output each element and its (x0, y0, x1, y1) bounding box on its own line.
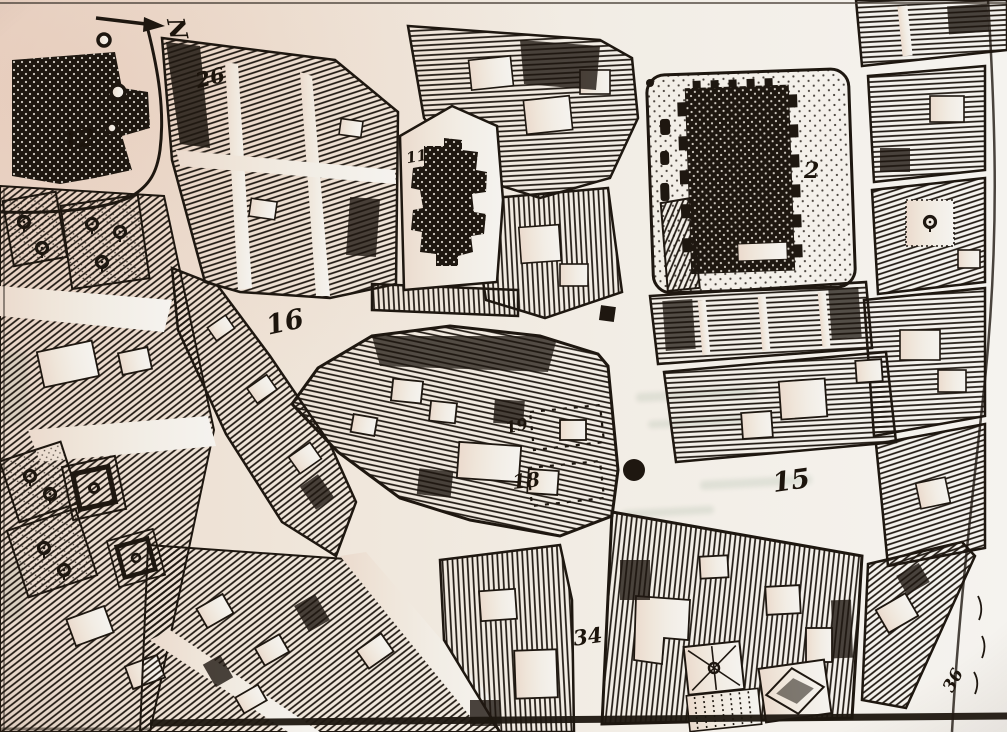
tree-roundel (98, 34, 110, 46)
courtyard (560, 264, 588, 286)
label-15: 15 (770, 463, 812, 499)
courtyard (339, 119, 363, 138)
building-solid (346, 197, 380, 257)
standard-square-marker (599, 305, 616, 322)
building-solid (831, 600, 853, 659)
courtyard (855, 359, 882, 383)
courtyard (900, 330, 940, 360)
building-solid (520, 40, 600, 90)
label-2: 2 (803, 158, 819, 184)
orchard-plot (3, 192, 68, 266)
diamond-parterre (759, 660, 832, 723)
courtyard (351, 414, 378, 436)
courtyard (469, 56, 514, 90)
courtyard (938, 370, 966, 392)
historic-map-figure: N 26 12 11 2 16 19 18 15 34 36 (0, 0, 1007, 732)
book-page-photo: N 26 12 11 2 16 19 18 15 34 36 (0, 0, 1007, 732)
tree-roundel (107, 123, 117, 133)
planted-rows-garden (686, 688, 761, 731)
courtyard (519, 225, 561, 264)
courtyard (916, 477, 951, 509)
courtyard (806, 628, 832, 662)
courtyard (560, 420, 586, 440)
market-row (372, 284, 518, 316)
courtyard (741, 411, 773, 439)
east-blocks (856, 0, 1007, 566)
courtyard (699, 555, 728, 578)
courtyard (765, 585, 800, 615)
courtyard (391, 378, 423, 403)
courtyard (429, 401, 457, 424)
radiating-garden (684, 641, 745, 695)
label-34: 34 (571, 622, 603, 651)
courtyard (249, 198, 277, 219)
building-solid-row (372, 336, 556, 372)
label-11: 11 (405, 146, 429, 167)
label-18: 18 (511, 467, 541, 494)
building-solid (662, 299, 695, 351)
building-solid (880, 148, 910, 172)
building-solid (620, 560, 650, 600)
courtyard (479, 589, 517, 621)
conduit-dot-marker (623, 459, 645, 481)
corner-dot (646, 79, 654, 87)
building-solid (828, 287, 861, 339)
courtyard (523, 96, 572, 135)
tree-roundel (111, 85, 125, 99)
building-solid (947, 4, 989, 35)
courtyard (514, 649, 558, 698)
churchyard-2 (646, 69, 855, 294)
courtyard (958, 250, 980, 268)
courtyard (930, 96, 964, 122)
building-solid (417, 468, 454, 497)
churchyard-11 (400, 106, 503, 290)
label-12: 12 (60, 122, 97, 155)
central-east-slabs (650, 282, 896, 462)
courtyard (779, 378, 828, 419)
